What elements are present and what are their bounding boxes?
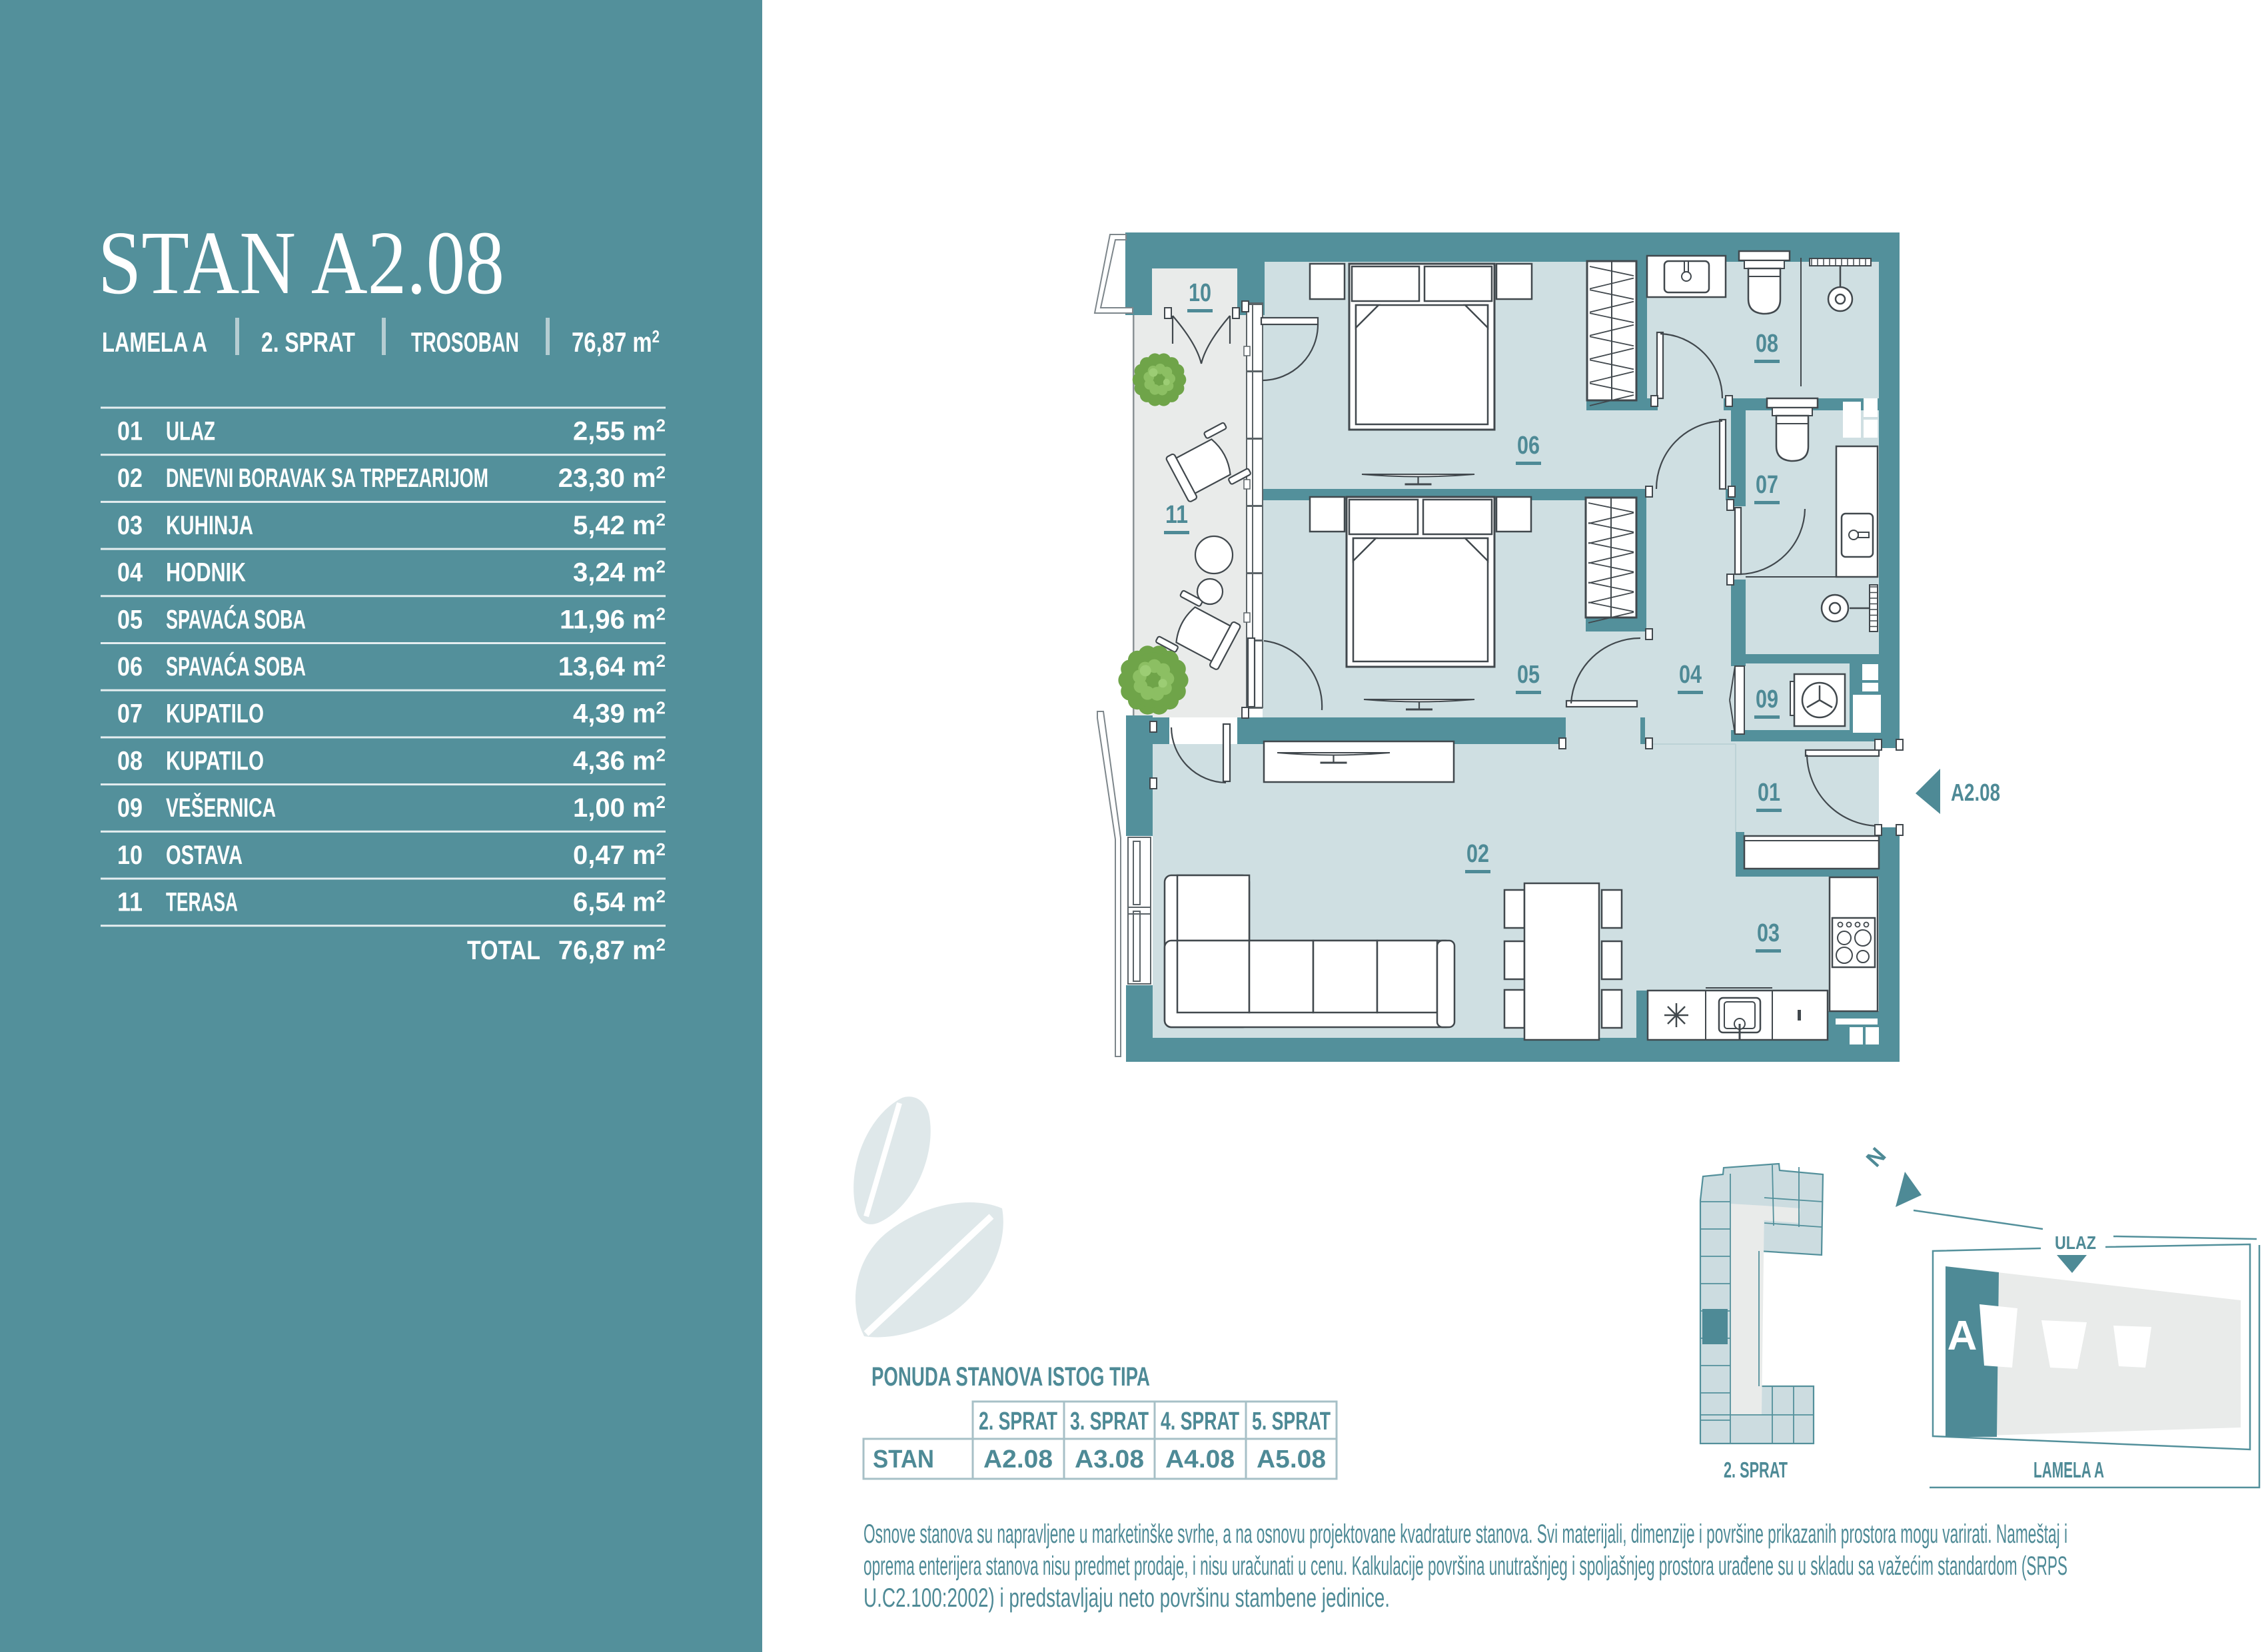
svg-text:05: 05 (1517, 661, 1540, 689)
svg-text:KUPATILO: KUPATILO (166, 699, 264, 729)
svg-text:N: N (1862, 1143, 1892, 1172)
svg-text:SPAVAĆA SOBA: SPAVAĆA SOBA (166, 651, 306, 681)
svg-text:3,24 m2: 3,24 m2 (573, 557, 666, 588)
svg-text:2. SPRAT: 2. SPRAT (979, 1408, 1057, 1436)
svg-text:07: 07 (117, 699, 143, 729)
svg-text:10: 10 (1189, 279, 1211, 307)
svg-text:ULAZ: ULAZ (166, 417, 215, 446)
svg-text:4,36 m2: 4,36 m2 (573, 745, 666, 775)
svg-text:04: 04 (117, 558, 143, 588)
svg-text:06: 06 (117, 652, 143, 681)
svg-text:A2.08: A2.08 (1951, 779, 2000, 806)
svg-text:OSTAVA: OSTAVA (166, 841, 243, 870)
svg-text:6,54 m2: 6,54 m2 (573, 887, 666, 917)
svg-text:01: 01 (1758, 779, 1780, 807)
svg-text:PONUDA STANOVA ISTOG TIPA: PONUDA STANOVA ISTOG TIPA (871, 1362, 1150, 1392)
svg-text:03: 03 (117, 511, 143, 540)
svg-text:09: 09 (117, 793, 143, 823)
svg-text:13,64 m2: 13,64 m2 (558, 651, 666, 681)
svg-text:4,39 m2: 4,39 m2 (573, 698, 666, 729)
svg-text:oprema enterijera stanova nisu: oprema enterijera stanova nisu predmet p… (863, 1551, 2067, 1581)
svg-text:STAN: STAN (873, 1445, 934, 1473)
svg-text:09: 09 (1756, 685, 1778, 713)
svg-text:SPAVAĆA SOBA: SPAVAĆA SOBA (166, 604, 306, 634)
svg-text:11: 11 (117, 888, 143, 917)
svg-text:HODNIK: HODNIK (166, 558, 246, 588)
svg-text:01: 01 (117, 417, 143, 446)
svg-text:04: 04 (1679, 661, 1702, 689)
svg-text:2. SPRAT: 2. SPRAT (1724, 1457, 1788, 1482)
svg-text:06: 06 (1517, 432, 1540, 460)
svg-text:02: 02 (117, 464, 143, 493)
svg-text:05: 05 (117, 605, 143, 634)
svg-text:KUHINJA: KUHINJA (166, 511, 253, 540)
svg-text:U.C2.100:2002) i predstavljaju: U.C2.100:2002) i predstavljaju neto povr… (863, 1583, 1390, 1613)
svg-text:A2.08: A2.08 (983, 1445, 1053, 1473)
svg-text:23,30 m2: 23,30 m2 (558, 462, 666, 493)
svg-text:03: 03 (1757, 919, 1780, 947)
svg-text:TOTAL: TOTAL (467, 936, 540, 965)
svg-text:5. SPRAT: 5. SPRAT (1252, 1408, 1331, 1436)
svg-text:LAMELA A: LAMELA A (2033, 1457, 2104, 1482)
svg-text:11: 11 (1165, 501, 1188, 529)
svg-text:10: 10 (117, 841, 143, 870)
svg-text:5,42 m2: 5,42 m2 (573, 510, 666, 540)
svg-text:08: 08 (117, 746, 143, 775)
svg-text:A5.08: A5.08 (1257, 1445, 1326, 1473)
svg-text:2,55 m2: 2,55 m2 (573, 416, 666, 446)
svg-text:4. SPRAT: 4. SPRAT (1161, 1408, 1239, 1436)
svg-text:KUPATILO: KUPATILO (166, 746, 264, 775)
svg-text:VEŠERNICA: VEŠERNICA (166, 792, 276, 823)
svg-text:TERASA: TERASA (166, 888, 238, 917)
svg-text:STAN A2.08: STAN A2.08 (98, 213, 504, 313)
svg-text:ULAZ: ULAZ (2055, 1232, 2096, 1253)
svg-text:02: 02 (1466, 840, 1489, 868)
svg-text:A: A (1948, 1313, 1978, 1359)
svg-text:08: 08 (1756, 330, 1778, 358)
svg-text:2. SPRAT: 2. SPRAT (261, 326, 355, 358)
svg-text:76,87 m2: 76,87 m2 (558, 935, 666, 965)
svg-text:11,96 m2: 11,96 m2 (560, 604, 666, 634)
svg-text:DNEVNI BORAVAK SA TRPEZARIJOM: DNEVNI BORAVAK SA TRPEZARIJOM (166, 464, 488, 493)
svg-text:1,00 m2: 1,00 m2 (573, 792, 666, 823)
svg-text:LAMELA A: LAMELA A (102, 326, 207, 358)
svg-text:A4.08: A4.08 (1165, 1445, 1235, 1473)
svg-text:TROSOBAN: TROSOBAN (411, 326, 519, 358)
svg-text:3. SPRAT: 3. SPRAT (1070, 1408, 1149, 1436)
svg-text:0,47 m2: 0,47 m2 (573, 839, 666, 870)
svg-text:07: 07 (1756, 471, 1778, 499)
svg-text:76,87 m2: 76,87 m2 (572, 326, 660, 358)
svg-text:A3.08: A3.08 (1075, 1445, 1144, 1473)
svg-text:Osnove stanova su napravljene: Osnove stanova su napravljene u marketin… (863, 1519, 2067, 1549)
